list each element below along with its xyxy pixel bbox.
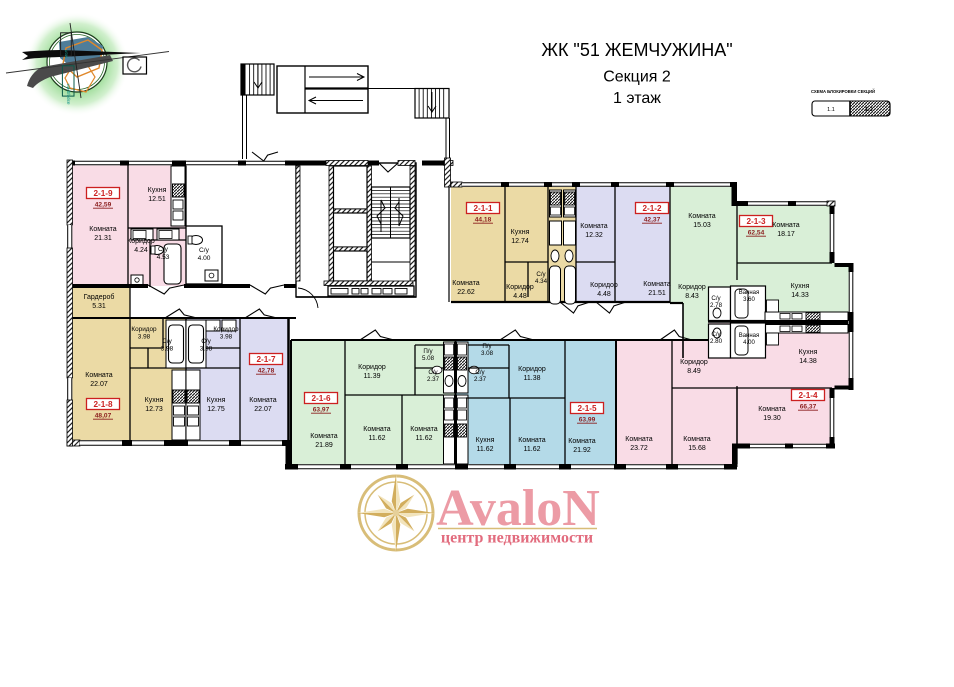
svg-text:4.00: 4.00 bbox=[743, 340, 755, 346]
svg-text:Комната: Комната bbox=[688, 213, 716, 220]
svg-text:3.98: 3.98 bbox=[161, 346, 174, 353]
svg-text:Комната: Комната bbox=[310, 433, 338, 440]
svg-text:С/у: С/у bbox=[536, 271, 546, 278]
svg-text:Комната: Комната bbox=[772, 222, 800, 229]
svg-text:3.98: 3.98 bbox=[138, 334, 151, 341]
svg-text:42,37: 42,37 bbox=[644, 217, 661, 224]
svg-text:П/у: П/у bbox=[482, 343, 492, 350]
svg-text:11.62: 11.62 bbox=[369, 435, 386, 442]
svg-text:С/у: С/у bbox=[475, 369, 485, 376]
svg-text:3.60: 3.60 bbox=[743, 297, 755, 303]
svg-text:Комната: Комната bbox=[683, 436, 711, 443]
svg-text:14.38: 14.38 bbox=[799, 358, 817, 365]
svg-text:2-1-6: 2-1-6 bbox=[311, 394, 331, 403]
svg-text:4.48: 4.48 bbox=[513, 293, 527, 300]
svg-text:11.38: 11.38 bbox=[524, 375, 541, 382]
svg-text:Коридор: Коридор bbox=[590, 282, 618, 289]
svg-text:4.53: 4.53 bbox=[157, 254, 170, 261]
svg-text:21.92: 21.92 bbox=[573, 447, 591, 454]
svg-text:12.32: 12.32 bbox=[585, 232, 603, 239]
svg-text:С/у: С/у bbox=[711, 331, 721, 338]
svg-text:Коридор: Коридор bbox=[518, 366, 546, 373]
svg-text:центр недвижимости: центр недвижимости bbox=[441, 530, 593, 547]
svg-text:22.07: 22.07 bbox=[90, 381, 108, 388]
svg-text:23.72: 23.72 bbox=[630, 445, 648, 452]
svg-text:15.68: 15.68 bbox=[688, 445, 706, 452]
svg-text:Кухня: Кухня bbox=[476, 437, 495, 444]
svg-text:мол: мол bbox=[64, 50, 69, 59]
svg-text:8.49: 8.49 bbox=[687, 368, 701, 375]
svg-text:2-1-2: 2-1-2 bbox=[642, 204, 662, 213]
svg-text:4.34: 4.34 bbox=[535, 278, 548, 285]
svg-text:2-1-8: 2-1-8 bbox=[93, 400, 113, 409]
svg-text:62,54: 62,54 bbox=[748, 230, 765, 237]
svg-text:21.89: 21.89 bbox=[315, 442, 333, 449]
svg-text:С/у: С/у bbox=[711, 295, 721, 302]
svg-text:Комната: Комната bbox=[580, 223, 608, 230]
svg-text:22.62: 22.62 bbox=[457, 289, 475, 296]
svg-text:3.08: 3.08 bbox=[481, 350, 494, 357]
svg-text:22.07: 22.07 bbox=[254, 406, 272, 413]
svg-text:С/у: С/у bbox=[201, 338, 211, 345]
svg-text:С/у: С/у bbox=[158, 246, 169, 253]
svg-text:2.37: 2.37 bbox=[427, 376, 440, 383]
svg-text:4.24: 4.24 bbox=[134, 247, 148, 254]
svg-text:63,97: 63,97 bbox=[313, 407, 330, 414]
svg-text:12.75: 12.75 bbox=[207, 406, 225, 413]
svg-text:5.31: 5.31 bbox=[92, 303, 106, 310]
svg-text:18.17: 18.17 bbox=[777, 231, 795, 238]
svg-text:Комната: Комната bbox=[410, 426, 438, 433]
svg-text:Кухня: Кухня bbox=[148, 187, 167, 194]
svg-text:4.00: 4.00 bbox=[198, 255, 211, 262]
svg-text:Коридор: Коридор bbox=[131, 326, 157, 333]
svg-text:12.73: 12.73 bbox=[145, 406, 163, 413]
svg-text:С/у: С/у bbox=[199, 247, 210, 254]
svg-text:1.1: 1.1 bbox=[827, 107, 835, 113]
svg-text:11.62: 11.62 bbox=[477, 446, 494, 453]
svg-text:2-1-5: 2-1-5 bbox=[577, 404, 597, 413]
svg-text:Коридор: Коридор bbox=[680, 359, 708, 366]
svg-text:21.51: 21.51 bbox=[648, 290, 666, 297]
svg-text:12.74: 12.74 bbox=[511, 238, 529, 245]
svg-text:Коридор: Коридор bbox=[127, 238, 155, 245]
svg-text:Коридор: Коридор bbox=[506, 284, 534, 291]
svg-text:11.62: 11.62 bbox=[524, 446, 541, 453]
svg-text:8.43: 8.43 bbox=[685, 293, 699, 300]
svg-text:1.2: 1.2 bbox=[865, 107, 873, 113]
svg-text:С/у: С/у bbox=[428, 369, 438, 376]
svg-text:Кухня: Кухня bbox=[207, 397, 226, 404]
svg-text:2-1-9: 2-1-9 bbox=[93, 189, 113, 198]
svg-text:42,59: 42,59 bbox=[95, 202, 112, 209]
svg-text:Комната: Комната bbox=[85, 372, 113, 379]
svg-text:4.48: 4.48 bbox=[597, 291, 611, 298]
svg-text:2-1-3: 2-1-3 bbox=[746, 217, 766, 226]
svg-text:Кухня: Кухня bbox=[791, 283, 810, 290]
svg-text:Комната: Комната bbox=[643, 281, 671, 288]
svg-text:Комната: Комната bbox=[452, 280, 480, 287]
svg-text:Кухня: Кухня bbox=[145, 397, 164, 404]
svg-text:Ванная: Ванная bbox=[739, 333, 760, 339]
svg-text:Комната: Комната bbox=[89, 226, 117, 233]
svg-text:5.08: 5.08 bbox=[422, 355, 435, 362]
svg-text:2-1-4: 2-1-4 bbox=[798, 391, 818, 400]
svg-text:2-1-7: 2-1-7 bbox=[256, 355, 276, 364]
svg-text:ЖК "51 ЖЕМЧУЖИНА": ЖК "51 ЖЕМЧУЖИНА" bbox=[541, 40, 732, 60]
svg-text:СХЕМА БЛОКИРОВКИ СЕКЦИЙ: СХЕМА БЛОКИРОВКИ СЕКЦИЙ bbox=[811, 89, 875, 94]
svg-text:Комната: Комната bbox=[568, 438, 596, 445]
svg-text:3.98: 3.98 bbox=[200, 346, 213, 353]
svg-text:аэродром: аэродром bbox=[66, 84, 71, 105]
svg-text:Комната: Комната bbox=[249, 397, 277, 404]
svg-text:42,78: 42,78 bbox=[258, 368, 275, 375]
svg-text:15.03: 15.03 bbox=[693, 222, 711, 229]
svg-text:2.78: 2.78 bbox=[710, 302, 723, 309]
svg-text:Гардероб: Гардероб bbox=[84, 293, 115, 301]
svg-text:Коридор: Коридор bbox=[213, 326, 239, 333]
svg-text:Комната: Комната bbox=[625, 436, 653, 443]
svg-text:Секция 2: Секция 2 bbox=[603, 69, 671, 86]
svg-text:С/у: С/у bbox=[162, 338, 172, 345]
svg-text:Кухня: Кухня bbox=[799, 349, 818, 356]
svg-text:63,99: 63,99 bbox=[579, 417, 596, 424]
svg-text:Комната: Комната bbox=[758, 406, 786, 413]
svg-text:2.37: 2.37 bbox=[474, 376, 487, 383]
svg-text:14.33: 14.33 bbox=[791, 292, 809, 299]
svg-text:Ванная: Ванная bbox=[739, 290, 760, 296]
svg-text:2-1-1: 2-1-1 bbox=[473, 204, 493, 213]
svg-text:Комната: Комната bbox=[363, 426, 391, 433]
svg-text:Комната: Комната bbox=[518, 437, 546, 444]
svg-text:66,37: 66,37 bbox=[800, 404, 817, 411]
svg-text:3.98: 3.98 bbox=[220, 334, 233, 341]
svg-text:11.39: 11.39 bbox=[364, 373, 381, 380]
svg-text:19.30: 19.30 bbox=[763, 415, 781, 422]
svg-text:48,07: 48,07 bbox=[95, 413, 112, 420]
svg-text:11.62: 11.62 bbox=[416, 435, 433, 442]
svg-text:Кухня: Кухня bbox=[511, 229, 530, 236]
svg-text:21.31: 21.31 bbox=[94, 235, 112, 242]
svg-text:44,18: 44,18 bbox=[475, 217, 492, 224]
svg-text:П/у: П/у bbox=[423, 348, 433, 355]
svg-text:12.51: 12.51 bbox=[148, 196, 166, 203]
svg-text:Коридор: Коридор bbox=[678, 284, 706, 291]
svg-text:1 этаж: 1 этаж bbox=[613, 90, 661, 107]
svg-text:2.80: 2.80 bbox=[710, 338, 723, 345]
svg-text:Коридор: Коридор bbox=[358, 364, 386, 371]
